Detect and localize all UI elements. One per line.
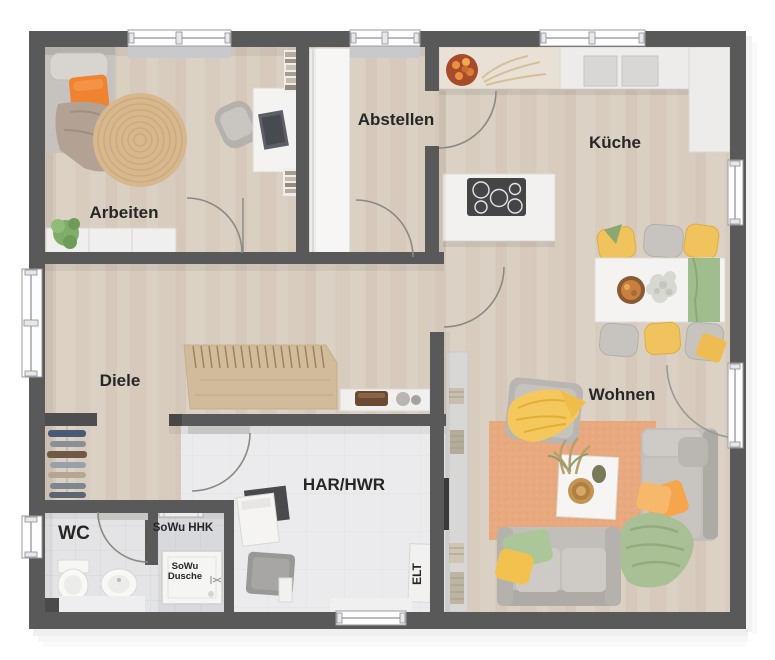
svg-text:Wohnen: Wohnen [589, 385, 656, 404]
svg-text:Dusche: Dusche [168, 571, 202, 582]
svg-text:Abstellen: Abstellen [358, 110, 435, 129]
svg-text:WC: WC [58, 523, 90, 544]
svg-text:Diele: Diele [100, 371, 141, 390]
svg-text:HAR/HWR: HAR/HWR [303, 475, 385, 494]
svg-text:SoWu HHK: SoWu HHK [153, 522, 214, 534]
svg-text:Küche: Küche [589, 133, 641, 152]
svg-text:ELT: ELT [410, 562, 424, 584]
svg-text:Arbeiten: Arbeiten [90, 203, 159, 222]
